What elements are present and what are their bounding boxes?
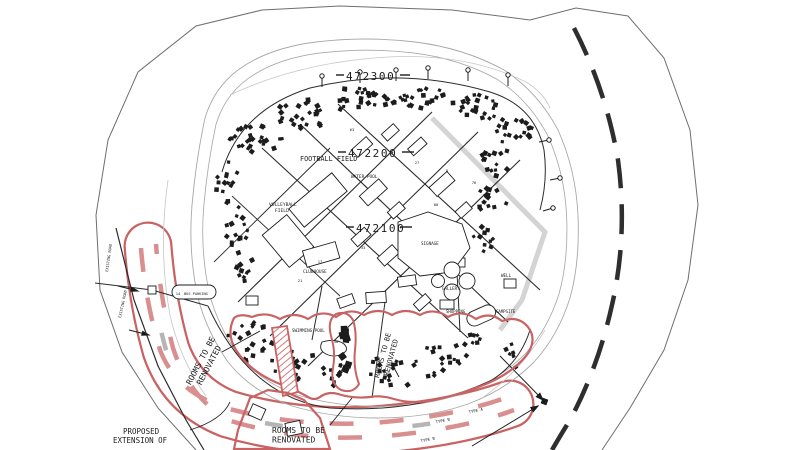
grid-coordinate-label: 472300 bbox=[346, 70, 395, 83]
building-footprint bbox=[438, 345, 442, 349]
building-footprint bbox=[262, 338, 267, 343]
drawing-page: 472300472200472100FOOTBALL FIELDVOLLEYBA… bbox=[0, 0, 800, 450]
lot-number: 17 bbox=[318, 259, 323, 264]
lot-number: 8 bbox=[446, 168, 449, 173]
building-footprint bbox=[437, 88, 441, 92]
building-footprint bbox=[304, 122, 309, 127]
building-footprint bbox=[425, 346, 429, 350]
building-footprint bbox=[503, 346, 509, 352]
place-label-water-pool: WATER POOL bbox=[351, 174, 378, 180]
building-footprint bbox=[236, 205, 241, 210]
place-label-clubhouse: CLUBHOUSE bbox=[303, 269, 327, 275]
building-footprint bbox=[502, 125, 507, 130]
building-footprint bbox=[233, 232, 238, 237]
building-footprint bbox=[387, 378, 392, 383]
building-footprint bbox=[237, 335, 243, 341]
utility-pole-icon bbox=[506, 73, 510, 86]
building-footprint bbox=[283, 103, 289, 109]
building-footprint bbox=[483, 243, 487, 247]
place-label-swimming-pool: SWIMMING POOL bbox=[292, 328, 325, 333]
utility-pole-icon bbox=[426, 66, 430, 79]
building-footprint bbox=[447, 354, 452, 359]
building-footprint bbox=[480, 115, 485, 120]
building-footprint bbox=[295, 103, 301, 109]
building-footprint bbox=[462, 341, 468, 347]
building-footprint bbox=[357, 86, 361, 90]
building-footprint bbox=[342, 105, 345, 108]
building-footprint bbox=[237, 273, 242, 278]
building-footprint bbox=[226, 199, 230, 203]
building-footprint bbox=[249, 257, 255, 263]
building-footprint bbox=[338, 98, 343, 103]
building-footprint bbox=[496, 123, 501, 128]
building-footprint bbox=[214, 187, 219, 192]
building-footprint bbox=[249, 341, 255, 347]
building-footprint bbox=[245, 228, 249, 232]
building-footprint bbox=[486, 204, 491, 209]
utility-pole-icon bbox=[543, 206, 555, 211]
building-footprint bbox=[491, 150, 497, 156]
place-label-volleyball: VOLLEYBALL bbox=[269, 202, 297, 208]
building-footprint bbox=[342, 86, 347, 91]
building-footprint bbox=[504, 166, 510, 172]
building-footprint bbox=[432, 373, 437, 378]
building-footprint bbox=[518, 134, 523, 139]
building-footprint bbox=[278, 109, 284, 115]
building-footprint bbox=[310, 353, 315, 358]
building-footprint bbox=[421, 93, 426, 98]
building-footprint bbox=[482, 111, 487, 116]
building-footprint bbox=[321, 365, 327, 371]
lot-number: 27 bbox=[415, 160, 420, 165]
building-footprint bbox=[259, 123, 265, 129]
building-footprint bbox=[494, 168, 498, 172]
building-footprint bbox=[475, 340, 480, 345]
place-label-field: FIELD bbox=[275, 208, 289, 214]
building-footprint bbox=[489, 239, 492, 242]
building-footprint bbox=[358, 100, 363, 105]
building-footprint bbox=[492, 114, 496, 118]
building-footprint bbox=[464, 353, 470, 359]
building-footprint bbox=[453, 343, 459, 349]
building-footprint bbox=[489, 168, 494, 173]
building-footprint bbox=[404, 382, 410, 388]
building-footprint bbox=[235, 170, 240, 175]
building-footprint bbox=[504, 148, 509, 153]
building-footprint bbox=[440, 362, 444, 366]
building-clusters bbox=[214, 86, 534, 388]
building-footprint bbox=[271, 145, 277, 151]
building-footprint bbox=[492, 205, 497, 210]
building-footprint bbox=[475, 333, 479, 337]
building-footprint bbox=[509, 342, 513, 346]
utility-pole-icon bbox=[466, 68, 470, 81]
building-footprint bbox=[522, 130, 526, 134]
building-footprint bbox=[511, 354, 516, 359]
proposed-extension-label: PROPOSEDEXTENSION OF bbox=[113, 427, 168, 445]
lot-number: 50 bbox=[334, 339, 339, 344]
building-footprint bbox=[230, 243, 235, 248]
building-footprint bbox=[224, 223, 229, 228]
building-footprint bbox=[383, 102, 389, 108]
building-footprint bbox=[240, 143, 245, 148]
existing-road-label: EXISTING ROAD bbox=[118, 290, 128, 318]
building-footprint bbox=[478, 189, 483, 194]
building-footprint bbox=[300, 116, 305, 121]
building-footprint bbox=[514, 118, 519, 123]
building-footprint bbox=[293, 113, 299, 119]
building-footprint bbox=[410, 95, 415, 100]
existing-road-label: EXISTING ROAD bbox=[105, 244, 113, 272]
building-footprint bbox=[426, 374, 431, 379]
building-footprint bbox=[424, 86, 429, 91]
building-footprint bbox=[221, 189, 225, 193]
building-footprint bbox=[365, 100, 372, 107]
building-footprint bbox=[216, 180, 220, 184]
building-footprint bbox=[360, 91, 364, 95]
building-footprint bbox=[439, 355, 445, 361]
building-footprint bbox=[250, 353, 255, 358]
building-footprint bbox=[260, 324, 266, 330]
building-footprint bbox=[367, 93, 372, 98]
lot-number: 21 bbox=[298, 278, 303, 283]
building-footprint bbox=[398, 360, 403, 365]
lot-number: 33 bbox=[361, 245, 366, 250]
building-footprint bbox=[500, 117, 506, 123]
building-footprint bbox=[371, 360, 376, 365]
building-footprint bbox=[322, 371, 327, 376]
building-footprint bbox=[440, 367, 446, 373]
building-footprint bbox=[238, 236, 243, 241]
building-footprint bbox=[472, 234, 476, 238]
building-footprint bbox=[477, 92, 482, 97]
building-footprint bbox=[369, 373, 373, 377]
building-footprint bbox=[471, 341, 475, 345]
lot-number: 63 bbox=[350, 127, 355, 132]
building-footprint bbox=[504, 201, 509, 206]
building-footprint bbox=[448, 361, 452, 365]
building-footprint bbox=[456, 359, 460, 363]
building-footprint bbox=[495, 129, 500, 134]
building-footprint bbox=[277, 104, 283, 110]
building-footprint bbox=[434, 95, 439, 100]
building-footprint bbox=[453, 358, 456, 361]
place-label-signage: SIGNAGE bbox=[421, 241, 439, 246]
building-footprint bbox=[239, 215, 246, 222]
building-footprint bbox=[472, 93, 476, 97]
building-footprint bbox=[236, 250, 242, 256]
building-footprint bbox=[465, 113, 469, 117]
building-footprint bbox=[270, 359, 274, 363]
place-label-bus-parking: BUS PARKING bbox=[184, 292, 208, 296]
building-footprint bbox=[426, 100, 430, 104]
building-footprint bbox=[513, 134, 519, 140]
lot-number: 80 bbox=[434, 202, 439, 207]
place-label-football-field: FOOTBALL FIELD bbox=[300, 155, 357, 163]
place-label-shopping: SHOPPING bbox=[446, 309, 466, 314]
building-footprint bbox=[414, 360, 417, 363]
place-label-well: WELL bbox=[501, 273, 512, 278]
building-footprint bbox=[245, 330, 251, 336]
lot-number: 76 bbox=[472, 180, 477, 185]
building-footprint bbox=[492, 106, 496, 110]
building-footprint bbox=[235, 214, 239, 218]
building-footprint bbox=[491, 99, 494, 102]
building-footprint bbox=[487, 116, 492, 121]
building-footprint bbox=[215, 175, 220, 180]
building-footprint bbox=[441, 92, 445, 96]
building-footprint bbox=[232, 331, 237, 336]
building-footprint bbox=[242, 279, 247, 284]
building-footprint bbox=[243, 235, 248, 240]
building-footprint bbox=[473, 105, 479, 111]
grid-coordinate-label: 472100 bbox=[356, 222, 405, 235]
building-footprint bbox=[430, 349, 435, 354]
coastline-dashed-line bbox=[552, 28, 622, 450]
building-footprint bbox=[494, 162, 498, 166]
well-building bbox=[504, 279, 516, 288]
building-footprint bbox=[260, 349, 264, 353]
building-footprint bbox=[224, 233, 230, 239]
building-footprint bbox=[373, 103, 377, 107]
building-footprint bbox=[242, 222, 246, 226]
building-footprint bbox=[503, 133, 507, 137]
building-footprint bbox=[484, 95, 488, 99]
building-footprint bbox=[481, 249, 485, 253]
place-label-campsite: CAMPSITE bbox=[496, 309, 516, 314]
building-footprint bbox=[488, 244, 493, 249]
building-footprint bbox=[498, 151, 504, 157]
building-footprint bbox=[479, 224, 485, 230]
building-footprint bbox=[355, 90, 360, 95]
building-footprint bbox=[274, 369, 278, 373]
building-footprint bbox=[474, 97, 480, 103]
building-footprint bbox=[262, 142, 265, 145]
lot-number: 14 bbox=[176, 291, 181, 296]
building-footprint bbox=[314, 103, 321, 110]
building-footprint bbox=[451, 100, 456, 105]
building-footprint bbox=[388, 382, 393, 387]
main-gate bbox=[148, 286, 156, 294]
building-footprint bbox=[239, 268, 245, 274]
building-footprint bbox=[221, 180, 227, 186]
building-footprint bbox=[301, 358, 307, 364]
building-footprint bbox=[418, 105, 424, 111]
utility-pole-icon bbox=[550, 176, 562, 180]
site-plan-canvas: 472300472200472100FOOTBALL FIELDVOLLEYBA… bbox=[0, 0, 800, 450]
building-footprint bbox=[278, 137, 281, 140]
building-footprint bbox=[356, 105, 361, 110]
place-label-gallery: GALLERY bbox=[442, 286, 460, 291]
building-footprint bbox=[411, 362, 417, 368]
building-footprint bbox=[307, 110, 312, 115]
building-footprint bbox=[227, 160, 231, 164]
building-footprint bbox=[485, 228, 490, 233]
building-footprint bbox=[228, 221, 235, 228]
building-footprint bbox=[240, 324, 244, 328]
building-footprint bbox=[500, 140, 504, 144]
building-footprint bbox=[507, 133, 512, 138]
